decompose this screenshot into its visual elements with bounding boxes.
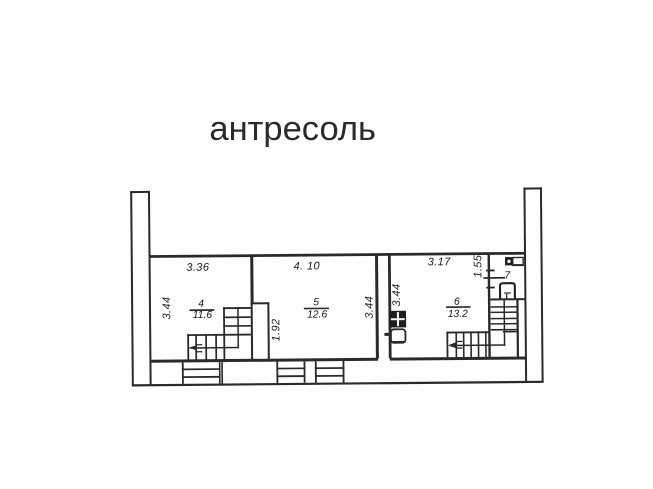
- svg-text:4. 10: 4. 10: [294, 260, 321, 272]
- svg-text:3.44: 3.44: [391, 283, 403, 306]
- svg-text:12.6: 12.6: [307, 309, 327, 320]
- svg-text:1.92: 1.92: [270, 318, 282, 341]
- svg-text:11.6: 11.6: [193, 310, 213, 321]
- svg-text:3.44: 3.44: [364, 296, 376, 319]
- svg-text:7: 7: [504, 270, 511, 281]
- svg-text:3.17: 3.17: [428, 256, 452, 268]
- svg-text:3.44: 3.44: [161, 296, 173, 319]
- svg-text:антресоль: антресоль: [209, 110, 376, 148]
- svg-text:5: 5: [313, 297, 319, 308]
- svg-text:1.55: 1.55: [472, 254, 484, 278]
- svg-text:6: 6: [454, 297, 460, 308]
- svg-text:13.2: 13.2: [448, 309, 468, 320]
- svg-text:3.36: 3.36: [186, 262, 210, 274]
- svg-text:4: 4: [198, 299, 204, 310]
